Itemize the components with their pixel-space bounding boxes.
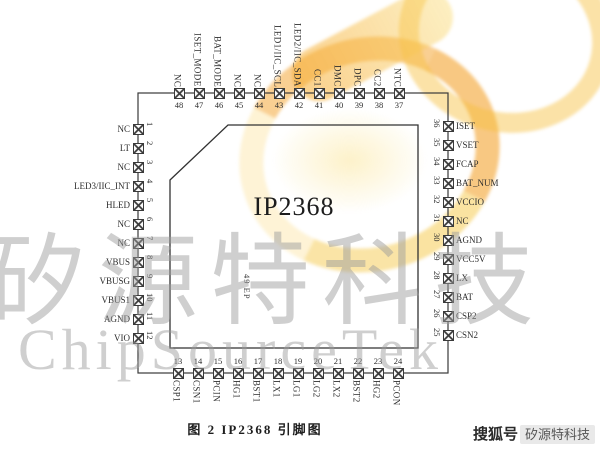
pin-label: BAT: [456, 292, 473, 302]
pin-pad-icon: [273, 368, 284, 379]
pin-label: PCON: [392, 380, 402, 406]
exposed-pad-label: 49 EP: [242, 274, 252, 300]
pin-label: CSN2: [456, 330, 478, 340]
pin-label: LED3/IIC_INT: [2, 181, 130, 191]
pin-pad-icon: [133, 143, 144, 154]
pin-number: 25: [432, 328, 442, 337]
pinout-figure: IP2368 49 EP NC1LT2NC3LED3/IIC_INT4HLED5…: [0, 0, 600, 450]
pin-pad-icon: [294, 88, 305, 99]
pin-number: 19: [289, 356, 307, 366]
pin-label: NTC: [393, 68, 403, 87]
pin-label: VSET: [456, 140, 479, 150]
pin-number: 32: [432, 195, 442, 204]
pin-pad-icon: [213, 368, 224, 379]
pin-number: 24: [389, 356, 407, 366]
pin-number: 16: [229, 356, 247, 366]
pin-number: 40: [330, 100, 348, 110]
pin-pad-icon: [443, 159, 454, 170]
pin-pad-icon: [374, 88, 385, 99]
pin-pad-icon: [443, 292, 454, 303]
pin-pad-icon: [174, 88, 185, 99]
pin-pad-icon: [133, 276, 144, 287]
pin-number: 37: [390, 100, 408, 110]
pin-label: VCCIO: [456, 197, 484, 207]
pin-number: 14: [189, 356, 207, 366]
pin-number: 11: [145, 312, 155, 320]
pin-pad-icon: [394, 88, 405, 99]
pinout-diagram: IP2368 49 EP NC1LT2NC3LED3/IIC_INT4HLED5…: [0, 0, 600, 450]
pin-pad-icon: [443, 235, 454, 246]
pin-number: 43: [270, 100, 288, 110]
pin-label: NC: [173, 74, 183, 87]
pin-pad-icon: [133, 295, 144, 306]
pin-number: 2: [145, 141, 155, 145]
pin-number: 41: [310, 100, 328, 110]
pin-pad-icon: [173, 368, 184, 379]
pin-label: NC: [2, 219, 130, 229]
pin-number: 30: [432, 233, 442, 242]
pin-number: 27: [432, 290, 442, 299]
pin-label: NC: [2, 238, 130, 248]
pin-pad-icon: [133, 219, 144, 230]
pin-pad-icon: [133, 124, 144, 135]
pin-pad-icon: [253, 368, 264, 379]
chip-body: [170, 125, 418, 348]
pin-label: VBUSG: [2, 276, 130, 286]
pin-pad-icon: [443, 121, 454, 132]
pin-pad-icon: [333, 368, 344, 379]
pin-pad-icon: [274, 88, 285, 99]
pin-label: FCAP: [456, 159, 479, 169]
pin-number: 38: [370, 100, 388, 110]
pin-label: BAT_MODE: [213, 36, 223, 87]
pin-pad-icon: [443, 197, 454, 208]
pin-number: 34: [432, 157, 442, 166]
pin-number: 15: [209, 356, 227, 366]
pin-number: 8: [145, 255, 155, 259]
pin-label: LX: [456, 273, 468, 283]
pin-number: 5: [145, 198, 155, 202]
pin-label: VCC5V: [456, 254, 486, 264]
pin-label: NC: [2, 124, 130, 134]
pin-pad-icon: [314, 88, 325, 99]
pin-pad-icon: [214, 88, 225, 99]
pin-label: LG2: [312, 380, 322, 398]
pin-number: 33: [432, 176, 442, 185]
pin-number: 36: [432, 119, 442, 128]
pin-pad-icon: [133, 238, 144, 249]
pin-number: 23: [369, 356, 387, 366]
pin-label: LX2: [332, 380, 342, 398]
pin-number: 12: [145, 331, 155, 340]
pin-number: 1: [145, 122, 155, 126]
pin-number: 21: [329, 356, 347, 366]
pin-label: DMC: [333, 65, 343, 87]
pin-number: 39: [350, 100, 368, 110]
pin-pad-icon: [133, 200, 144, 211]
pin-number: 31: [432, 214, 442, 223]
pin-label: HG2: [372, 380, 382, 399]
pin-label: AGND: [2, 314, 130, 324]
pin-number: 26: [432, 309, 442, 318]
pin-label: NC: [253, 74, 263, 87]
pin-number: 47: [190, 100, 208, 110]
pin-number: 46: [210, 100, 228, 110]
pin-label: BAT_NUM: [456, 178, 499, 188]
pin-label: CC1: [313, 69, 323, 87]
pin-pad-icon: [443, 216, 454, 227]
pin-number: 29: [432, 252, 442, 261]
pin-number: 22: [349, 356, 367, 366]
pin-number: 28: [432, 271, 442, 280]
pin-number: 4: [145, 179, 155, 183]
pin-label: BST1: [252, 380, 262, 403]
pin-pad-icon: [133, 314, 144, 325]
pin-number: 18: [269, 356, 287, 366]
chip-name: IP2368: [214, 192, 374, 222]
figure-caption: 图 2 IP2368 引脚图: [0, 419, 510, 438]
pin-pad-icon: [443, 311, 454, 322]
pin-label: AGND: [456, 235, 482, 245]
pin-label: CSP2: [456, 311, 477, 321]
pin-label: NC: [2, 162, 130, 172]
pin-label: LG1: [292, 380, 302, 398]
sohu-account-label: 矽源特科技: [520, 425, 595, 444]
pin-pad-icon: [293, 368, 304, 379]
pin-pad-icon: [373, 368, 384, 379]
pin-pad-icon: [133, 333, 144, 344]
pin-pad-icon: [443, 254, 454, 265]
pin-label: ISET_MODE: [193, 33, 203, 87]
pin-label: BST2: [352, 380, 362, 403]
pin-number: 7: [145, 236, 155, 240]
pin-number: 6: [145, 217, 155, 221]
pin-label: LED2/IIC_SDA: [293, 23, 303, 87]
pin-number: 3: [145, 160, 155, 164]
pin-label: HG1: [232, 380, 242, 399]
pin-pad-icon: [443, 178, 454, 189]
pin-pad-icon: [234, 88, 245, 99]
pin-pad-icon: [133, 181, 144, 192]
pin-pad-icon: [393, 368, 404, 379]
pin-label: LED1/IIC_SCL: [273, 25, 283, 87]
sohu-platform-label: 搜狐号: [473, 426, 518, 443]
pin-pad-icon: [254, 88, 265, 99]
pin-label: CSP1: [172, 380, 182, 402]
pin-label: VBUS: [2, 257, 130, 267]
pin-label: DPC: [353, 68, 363, 87]
pin-number: 42: [290, 100, 308, 110]
pin-label: CSN1: [192, 380, 202, 404]
pin-number: 9: [145, 274, 155, 278]
pin-number: 17: [249, 356, 267, 366]
pin-pad-icon: [354, 88, 365, 99]
pin-label: CC2: [373, 69, 383, 87]
pin-pad-icon: [133, 257, 144, 268]
pin-number: 13: [169, 356, 187, 366]
pin-number: 20: [309, 356, 327, 366]
pin-number: 35: [432, 138, 442, 147]
pin-label: HLED: [2, 200, 130, 210]
pin-number: 44: [250, 100, 268, 110]
pin-number: 48: [170, 100, 188, 110]
pin-label: PCIN: [212, 380, 222, 402]
pin-pad-icon: [443, 330, 454, 341]
pin-label: VBUS1: [2, 295, 130, 305]
pin-label: NC: [456, 216, 469, 226]
pin-pad-icon: [353, 368, 364, 379]
pin-number: 10: [145, 293, 155, 302]
pin-pad-icon: [233, 368, 244, 379]
pin-pad-icon: [443, 140, 454, 151]
pin-pad-icon: [334, 88, 345, 99]
pin-label: ISET: [456, 121, 475, 131]
pin-pad-icon: [443, 273, 454, 284]
pin-label: VIO: [2, 333, 130, 343]
pin-pad-icon: [193, 368, 204, 379]
pin-pad-icon: [313, 368, 324, 379]
pin-label: LT: [2, 143, 130, 153]
sohu-watermark: 搜狐号矽源特科技: [473, 423, 595, 444]
pin-label: LX1: [272, 380, 282, 398]
pin-label: NC: [233, 74, 243, 87]
pin-number: 45: [230, 100, 248, 110]
pin-pad-icon: [194, 88, 205, 99]
pin-pad-icon: [133, 162, 144, 173]
